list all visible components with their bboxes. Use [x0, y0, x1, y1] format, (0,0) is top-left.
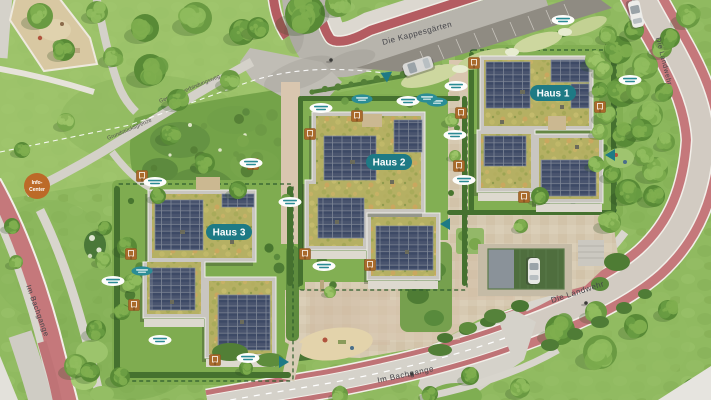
svg-text:Haus 1: Haus 1	[537, 89, 570, 100]
svg-text:Center: Center	[29, 187, 45, 193]
svg-text:Haus 3: Haus 3	[213, 228, 246, 239]
svg-text:Info-: Info-	[32, 180, 43, 186]
svg-text:Haus 2: Haus 2	[373, 158, 406, 169]
